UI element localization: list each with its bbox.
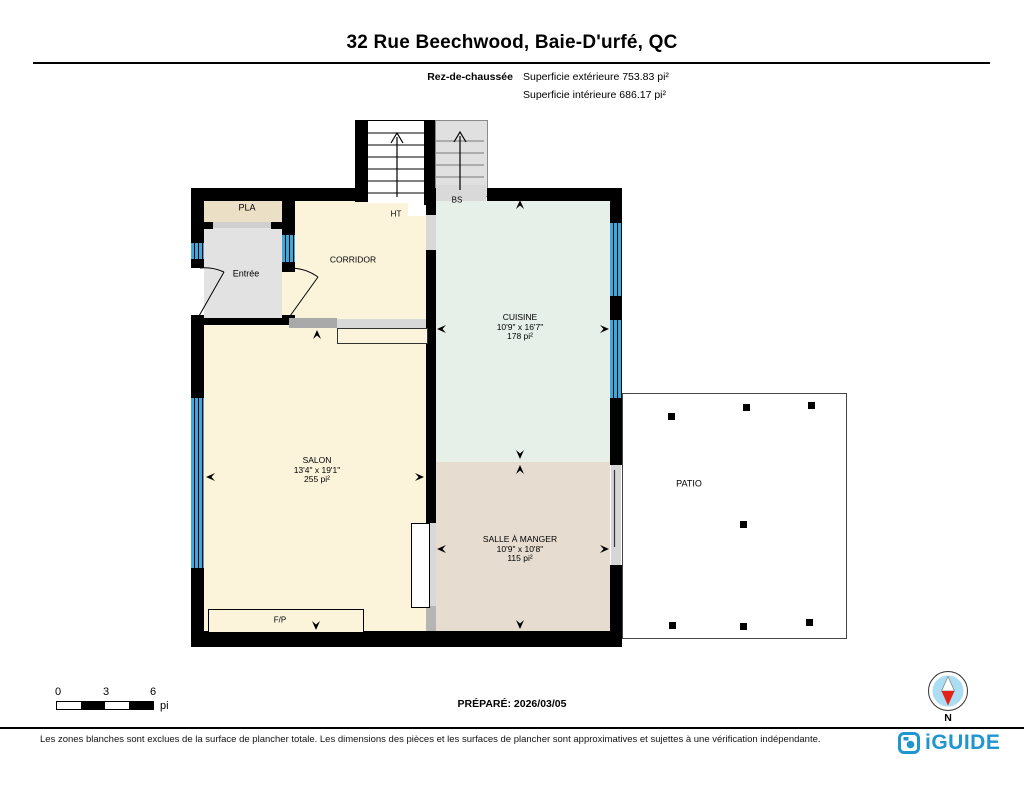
wall-segment — [204, 318, 295, 325]
iguide-logo-text: iGUIDE — [925, 731, 1000, 755]
stair-ht — [368, 120, 424, 203]
wall-segment — [191, 631, 622, 647]
room-label-entree: Entrée — [233, 269, 260, 279]
wall-segment — [487, 188, 622, 201]
opening-corridor-cuisine — [426, 215, 436, 250]
wall-segment — [204, 222, 213, 229]
wall-segment — [355, 120, 368, 202]
wall-segment — [191, 188, 204, 243]
wall-segment — [271, 222, 295, 229]
floor-label: Rez-de-chaussée — [300, 71, 513, 83]
wall-segment — [191, 188, 363, 201]
prepared-date: PRÉPARÉ: 2026/03/05 — [0, 698, 1024, 710]
patio-post — [808, 402, 815, 409]
compass-icon — [920, 668, 976, 714]
patio-deck — [622, 393, 847, 639]
pocket-door-panel — [411, 523, 430, 608]
half-wall-light — [337, 319, 426, 328]
room-area: 178 pi² — [497, 332, 544, 342]
room-label-fireplace: F/P — [274, 615, 286, 625]
wall-segment — [426, 188, 436, 215]
patio-post — [743, 404, 750, 411]
window — [610, 320, 622, 398]
room-label-ht: HT — [391, 209, 402, 219]
footer-divider — [0, 727, 1024, 729]
room-area: 255 pi² — [294, 475, 341, 485]
scale-tick-6: 6 — [150, 686, 156, 698]
wall-segment — [282, 201, 295, 235]
opening-pla — [213, 222, 271, 228]
patio-post — [740, 521, 747, 528]
room-label-corridor: CORRIDOR — [330, 255, 376, 265]
patio-post — [740, 623, 747, 630]
step-outline — [337, 328, 428, 344]
room-label-salon: SALON 13'4" x 19'1" 255 pi² — [294, 456, 341, 485]
wall-segment — [610, 188, 622, 223]
window — [191, 398, 204, 568]
window — [610, 223, 622, 296]
patio-post — [669, 622, 676, 629]
compass-north-label: N — [938, 712, 958, 724]
iguide-logo: iGUIDE — [897, 731, 1000, 755]
room-label-cuisine: CUISINE 10'9" x 16'7" 178 pi² — [497, 313, 544, 342]
iguide-logo-icon — [897, 731, 921, 755]
header-divider — [33, 62, 990, 64]
room-label-salle-a-manger: SALLE À MANGER 10'9" x 10'8" 115 pi² — [483, 535, 557, 564]
window — [191, 243, 204, 259]
room-area: 115 pi² — [483, 554, 557, 564]
floorplan-page: 32 Rue Beechwood, Baie-D'urfé, QC Rez-de… — [0, 0, 1024, 791]
area-interior: Superficie intérieure 686.17 pi² — [523, 89, 666, 101]
room-label-pla: PLA — [238, 203, 255, 213]
wall-segment — [426, 250, 436, 523]
disclaimer-text: Les zones blanches sont exclues de la su… — [40, 734, 821, 745]
page-title: 32 Rue Beechwood, Baie-D'urfé, QC — [0, 32, 1024, 54]
window — [282, 235, 295, 262]
wall-segment — [610, 296, 622, 320]
wall-gray-segment — [426, 606, 436, 631]
wall-segment — [610, 398, 622, 465]
area-exterior: Superficie extérieure 753.83 pi² — [523, 71, 669, 83]
wall-segment — [191, 315, 204, 398]
wall-segment — [191, 258, 204, 268]
wall-segment — [282, 262, 295, 272]
scale-tick-3: 3 — [103, 686, 109, 698]
room-label-bs: BS — [452, 195, 463, 205]
patio-post — [668, 413, 675, 420]
patio-post — [806, 619, 813, 626]
scale-tick-0: 0 — [55, 686, 61, 698]
half-wall-dark — [289, 318, 337, 328]
room-label-patio: PATIO — [676, 479, 702, 489]
sliding-door — [611, 465, 621, 565]
